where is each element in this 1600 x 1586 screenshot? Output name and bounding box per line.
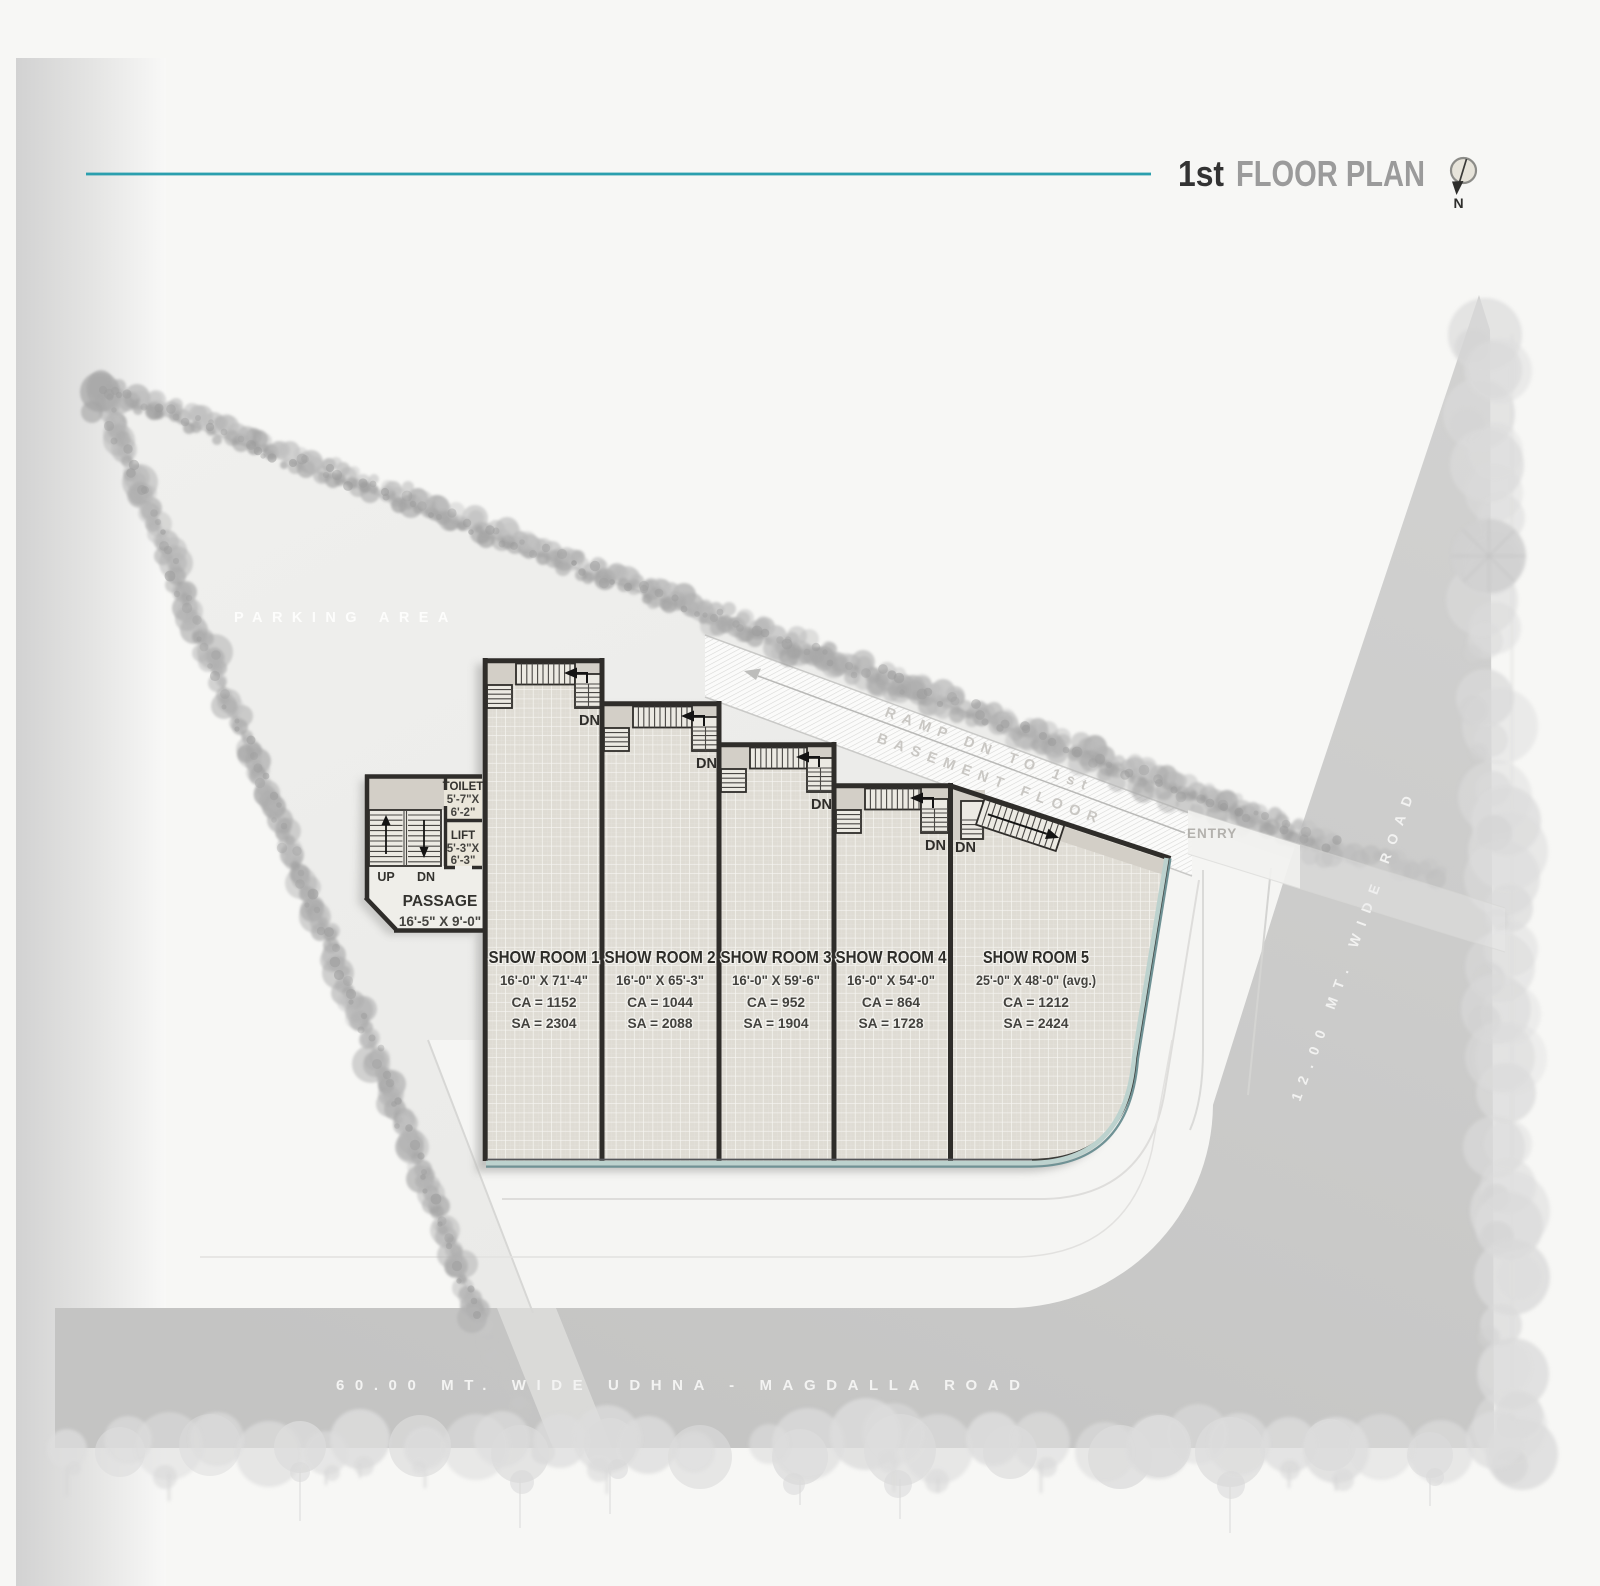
svg-text:SHOW ROOM 4: SHOW ROOM 4 bbox=[836, 947, 947, 967]
svg-text:SA = 2088: SA = 2088 bbox=[627, 1016, 692, 1031]
svg-text:CA = 1044: CA = 1044 bbox=[627, 995, 693, 1010]
svg-text:SA = 2424: SA = 2424 bbox=[1003, 1016, 1068, 1031]
svg-text:N: N bbox=[1453, 195, 1463, 211]
svg-text:DN: DN bbox=[579, 713, 600, 729]
svg-text:PASSAGE: PASSAGE bbox=[403, 893, 478, 910]
svg-text:16'-0" X 71'-4": 16'-0" X 71'-4" bbox=[500, 973, 588, 988]
svg-text:25'-0" X 48'-0" (avg.): 25'-0" X 48'-0" (avg.) bbox=[976, 973, 1096, 988]
svg-text:SHOW ROOM 5: SHOW ROOM 5 bbox=[983, 947, 1089, 967]
svg-text:DN: DN bbox=[696, 756, 717, 772]
svg-text:SHOW ROOM 3: SHOW ROOM 3 bbox=[721, 947, 832, 967]
svg-text:LIFT: LIFT bbox=[451, 830, 475, 842]
svg-text:CA = 1152: CA = 1152 bbox=[511, 995, 576, 1010]
svg-text:SA = 1904: SA = 1904 bbox=[743, 1016, 808, 1031]
svg-text:16'-0" X 59'-6": 16'-0" X 59'-6" bbox=[732, 973, 820, 988]
svg-text:6'-2": 6'-2" bbox=[451, 807, 476, 819]
svg-text:5'-7"X: 5'-7"X bbox=[447, 794, 480, 806]
svg-text:UP: UP bbox=[377, 870, 394, 884]
svg-text:PARKING AREA: PARKING AREA bbox=[234, 610, 458, 626]
svg-text:DN: DN bbox=[417, 870, 435, 884]
svg-text:5'-3"X: 5'-3"X bbox=[447, 843, 480, 855]
svg-text:16'-5" X 9'-0": 16'-5" X 9'-0" bbox=[399, 914, 481, 929]
svg-text:DN: DN bbox=[811, 797, 832, 813]
svg-text:DN: DN bbox=[925, 838, 946, 854]
svg-text:SA = 1728: SA = 1728 bbox=[858, 1016, 923, 1031]
svg-text:DN: DN bbox=[955, 840, 976, 856]
svg-text:SHOW ROOM 2: SHOW ROOM 2 bbox=[605, 947, 716, 967]
svg-text:TOILET: TOILET bbox=[443, 781, 484, 793]
svg-text:1st: 1st bbox=[1178, 153, 1224, 194]
svg-text:CA = 1212: CA = 1212 bbox=[1003, 995, 1069, 1010]
svg-text:16'-0" X 65'-3": 16'-0" X 65'-3" bbox=[616, 973, 704, 988]
svg-text:CA = 864: CA = 864 bbox=[862, 995, 920, 1010]
svg-text:ENTRY: ENTRY bbox=[1187, 826, 1237, 841]
svg-text:FLOOR PLAN: FLOOR PLAN bbox=[1236, 153, 1425, 194]
svg-text:6'-3": 6'-3" bbox=[451, 855, 476, 867]
svg-text:16'-0" X 54'-0": 16'-0" X 54'-0" bbox=[847, 973, 935, 988]
svg-text:SA = 2304: SA = 2304 bbox=[511, 1016, 576, 1031]
svg-text:SHOW ROOM 1: SHOW ROOM 1 bbox=[489, 947, 600, 967]
svg-text:CA = 952: CA = 952 bbox=[747, 995, 805, 1010]
